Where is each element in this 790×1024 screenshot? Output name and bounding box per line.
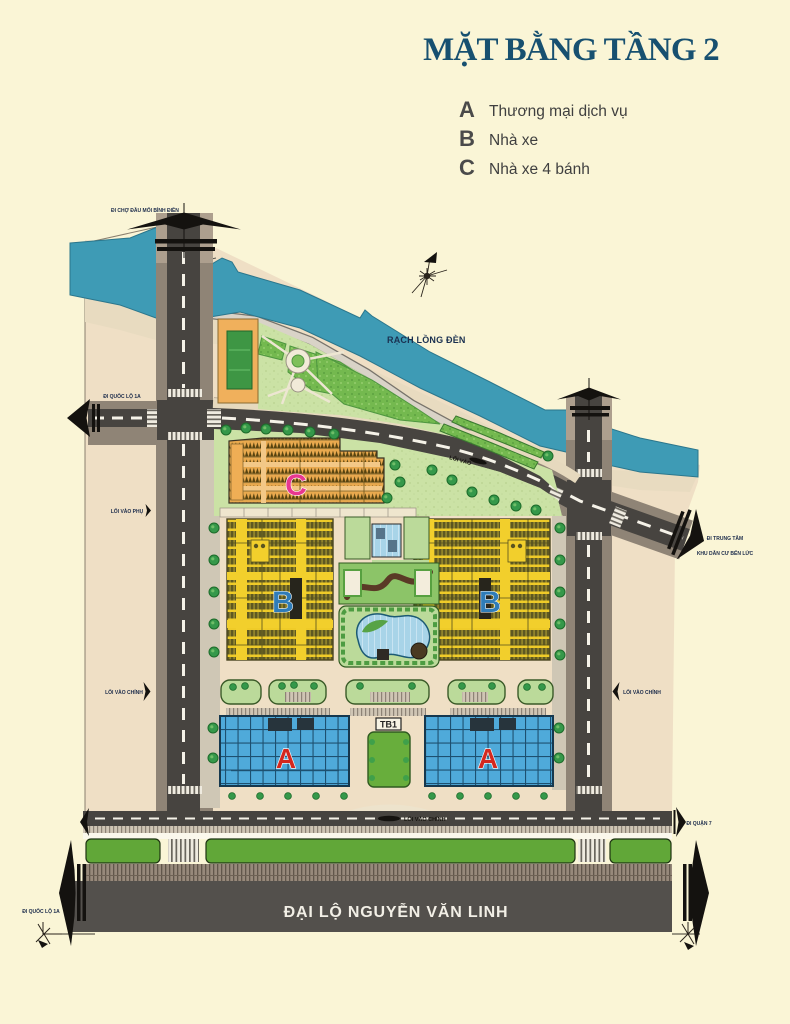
svg-text:TB1: TB1 <box>380 720 397 730</box>
svg-text:C: C <box>459 155 475 180</box>
svg-text:KHU DÂN CƯ BẾN LỨC: KHU DÂN CƯ BẾN LỨC <box>697 550 754 557</box>
svg-text:A: A <box>459 97 475 122</box>
svg-text:MẶT BẰNG TẦNG 2: MẶT BẰNG TẦNG 2 <box>423 29 719 68</box>
svg-text:A: A <box>478 743 498 774</box>
svg-text:ĐI CHỢ ĐẦU MỐI BÌNH ĐIỀN: ĐI CHỢ ĐẦU MỐI BÌNH ĐIỀN <box>111 206 179 214</box>
svg-text:Nhà xe 4 bánh: Nhà xe 4 bánh <box>489 161 590 178</box>
svg-text:RẠCH LỒNG ĐÈN: RẠCH LỒNG ĐÈN <box>387 334 466 345</box>
svg-text:ĐẠI LỘ NGUYỄN VĂN LINH: ĐẠI LỘ NGUYỄN VĂN LINH <box>284 902 509 921</box>
svg-text:B: B <box>272 586 294 619</box>
svg-text:ĐI TRUNG TÂM: ĐI TRUNG TÂM <box>707 535 743 542</box>
svg-text:B: B <box>459 126 475 151</box>
svg-text:LỐI VÀO CHÍNH: LỐI VÀO CHÍNH <box>105 688 143 696</box>
svg-text:Thương mại dịch vụ: Thương mại dịch vụ <box>489 103 628 120</box>
svg-text:B: B <box>479 586 501 619</box>
svg-text:ĐI QUỐC LỘ 1A: ĐI QUỐC LỘ 1A <box>22 907 60 915</box>
svg-text:ĐI QUỐC LỘ 1A: ĐI QUỐC LỘ 1A <box>103 392 141 400</box>
svg-text:C: C <box>285 469 307 502</box>
svg-text:A: A <box>276 743 296 774</box>
svg-text:LỐI VÀO PHỤ: LỐI VÀO PHỤ <box>111 508 144 515</box>
svg-text:Nhà xe: Nhà xe <box>489 132 538 149</box>
svg-text:LỐI VÀO CHÍNH: LỐI VÀO CHÍNH <box>404 815 446 823</box>
svg-text:LỐI VÀO CHÍNH: LỐI VÀO CHÍNH <box>623 688 661 696</box>
svg-text:ĐI QUẬN 7: ĐI QUẬN 7 <box>686 820 712 827</box>
